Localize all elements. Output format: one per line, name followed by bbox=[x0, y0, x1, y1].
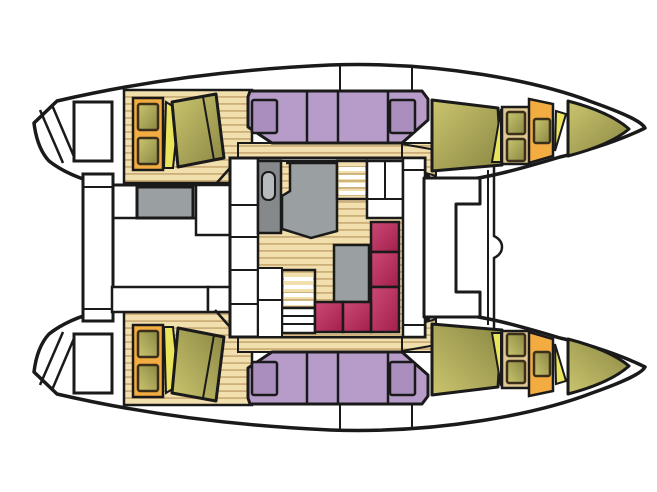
salon-table bbox=[334, 245, 369, 302]
salon-locker bbox=[258, 268, 282, 337]
starboard-companionway-steps bbox=[282, 270, 315, 333]
cockpit-side-seat bbox=[196, 185, 230, 235]
cockpit-corner-seat bbox=[208, 287, 230, 312]
step-tread bbox=[339, 175, 365, 179]
forward-seat bbox=[424, 178, 480, 317]
aft-platform-bar bbox=[83, 174, 113, 321]
step-tread bbox=[284, 285, 313, 289]
step-tread bbox=[284, 277, 313, 281]
steps-landing bbox=[282, 308, 315, 333]
forward-cockpit bbox=[424, 166, 502, 329]
sofa-segment bbox=[315, 302, 343, 332]
step-tread bbox=[339, 191, 365, 195]
salon bbox=[230, 158, 425, 337]
sofa-segment bbox=[371, 287, 399, 332]
sofa-segment bbox=[343, 302, 371, 332]
galley-sink bbox=[262, 172, 275, 200]
sofa-segment bbox=[371, 222, 399, 252]
galley-block bbox=[282, 163, 337, 238]
step-tread bbox=[339, 183, 365, 187]
forebeam-line bbox=[494, 166, 502, 329]
cockpit-aft-bench bbox=[112, 287, 208, 312]
catamaran-layout-diagram bbox=[0, 0, 657, 492]
sofa-segment bbox=[371, 252, 399, 287]
cockpit bbox=[112, 160, 237, 335]
salon-forward-strip bbox=[403, 158, 425, 337]
step-tread bbox=[284, 301, 313, 305]
port-companionway-steps bbox=[337, 161, 367, 199]
step-tread bbox=[284, 293, 313, 297]
cockpit-table bbox=[137, 187, 193, 218]
deck-plan-canvas bbox=[0, 0, 657, 492]
step-tread bbox=[339, 167, 365, 171]
